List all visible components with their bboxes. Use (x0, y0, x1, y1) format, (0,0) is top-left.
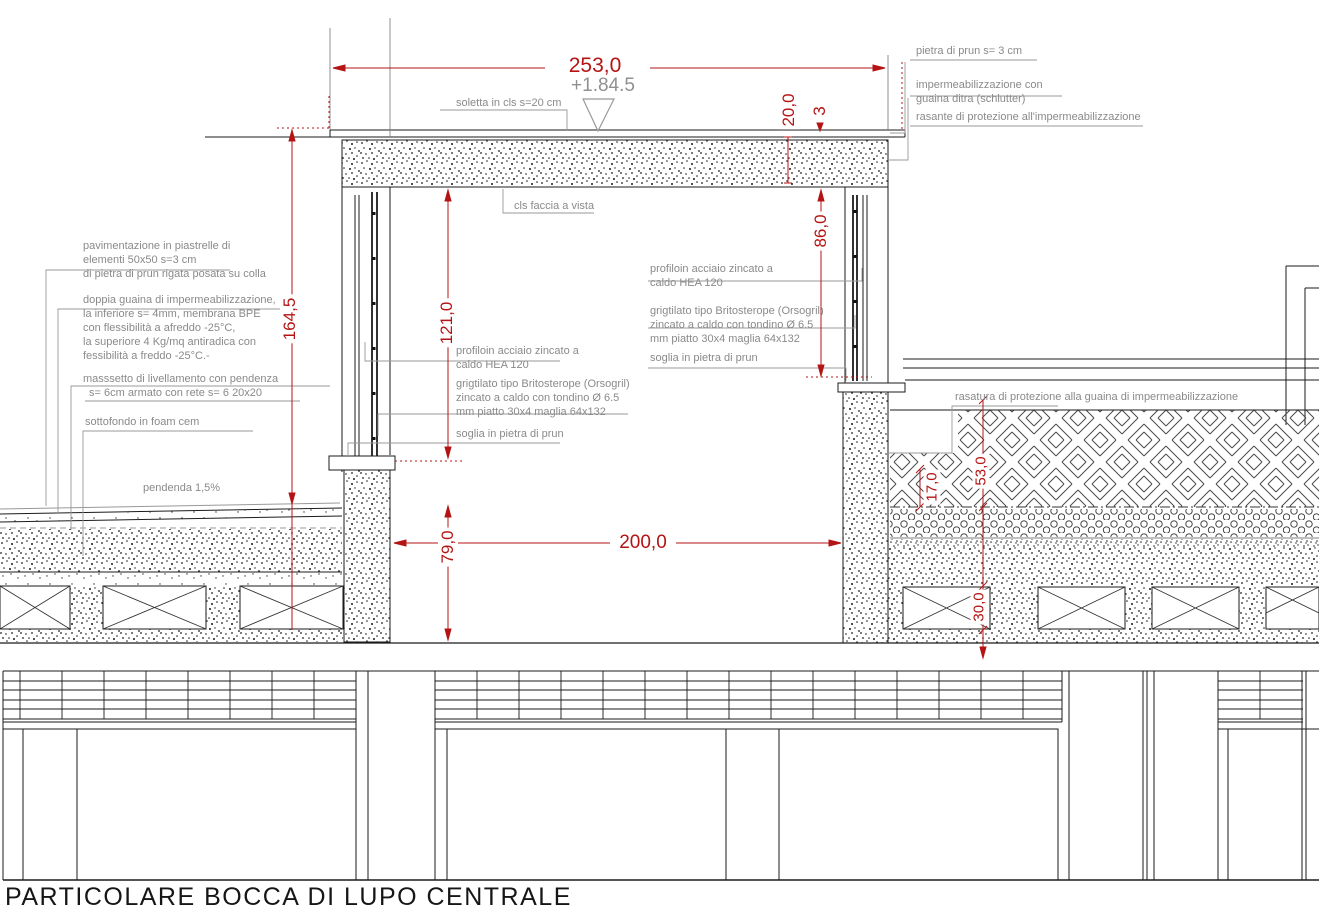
label-line: con flessibilità a afreddo -25°C, (83, 321, 276, 335)
level-marker-triangle (583, 99, 614, 131)
label-line: s= 6cm armato con rete s= 6 20x20 (83, 386, 278, 400)
label-line: profiloin acciaio zincato a (456, 344, 579, 358)
label-line: caldo HEA 120 (650, 276, 773, 290)
roof-slab (205, 130, 905, 187)
label-impermeabilizzazione: impermeabilizzazione con guaina ditra (s… (916, 78, 1043, 106)
dim-opening-height-right: 86,0 (811, 211, 831, 250)
lower-facade (3, 671, 1319, 880)
dim-terrace-buildup-depth: 53,0 (973, 453, 990, 488)
label-profilo-acciaio-right: profiloin acciaio zincato a caldo HEA 12… (650, 262, 773, 290)
label-line: fessibilità a freddo -25°C.- (83, 349, 276, 363)
drawing-title: PARTICOLARE BOCCA DI LUPO CENTRALE (5, 883, 572, 912)
label-line: masssetto di livellamento con pendenza (83, 372, 278, 386)
dim-stone-cap-thickness: 3 (810, 103, 830, 118)
label-line: zincato a caldo con tondino Ø 6.5 (456, 391, 630, 405)
label-line: profiloin acciaio zincato a (650, 262, 773, 276)
label-grigliato-center: grigtilato tipo Britosterope (Orsogril) … (456, 377, 630, 419)
label-line: mm piatto 30x4 maglia 64x132 (456, 405, 630, 419)
label-line: grigtilato tipo Britosterope (Orsogril) (650, 304, 824, 318)
label-line: doppia guaina di impermeabilizzazione, (83, 293, 276, 307)
label-line: guaina ditra (schlutter) (916, 92, 1043, 106)
label-rasatura: rasatura di protezione alla guaina di im… (955, 390, 1238, 404)
label-line: caldo HEA 120 (456, 358, 579, 372)
label-pietra-prun-cap: pietra di prun s= 3 cm (916, 44, 1022, 58)
dim-overall-height-left: 164,5 (280, 295, 300, 344)
label-sottofondo: sottofondo in foam cem (85, 415, 199, 429)
label-line: impermeabilizzazione con (916, 78, 1043, 92)
dim-clear-width: 200,0 (616, 532, 670, 554)
label-profilo-acciaio-center: profiloin acciaio zincato a caldo HEA 12… (456, 344, 579, 372)
right-terrace-layers (888, 266, 1319, 643)
label-line: mm piatto 30x4 maglia 64x132 (650, 332, 824, 346)
label-soletta: soletta in cls s=20 cm (456, 96, 561, 110)
label-line: la inferiore s= 4mm, membrana BPE (83, 307, 276, 321)
label-line: di pietra di prun rigata posata su colla (83, 267, 266, 281)
label-pavimentazione: pavimentazione in piastrelle di elementi… (83, 239, 266, 281)
label-line: grigtilato tipo Britosterope (Orsogril) (456, 377, 630, 391)
cad-section-drawing: soletta in cls s=20 cm cls faccia a vist… (0, 0, 1319, 918)
label-rasante: rasante di protezione all'impermeabilizz… (916, 110, 1141, 124)
label-pendenza: pendenda 1,5% (143, 481, 220, 495)
label-grigliato-right: grigtilato tipo Britosterope (Orsogril) … (650, 304, 824, 346)
label-line: pavimentazione in piastrelle di (83, 239, 266, 253)
label-massetto: masssetto di livellamento con pendenza s… (83, 372, 278, 400)
label-soglia-right: soglia in pietra di prun (650, 351, 758, 365)
label-doppia-guaina: doppia guaina di impermeabilizzazione, l… (83, 293, 276, 363)
dim-terrace-screed-depth: 17,0 (924, 469, 941, 504)
label-line: zincato a caldo con tondino Ø 6.5 (650, 318, 824, 332)
level-marker-value: +1.84.5 (571, 75, 635, 97)
label-cls-faccia-vista: cls faccia a vista (514, 199, 594, 213)
label-line: la superiore 4 Kg/mq antiradica con (83, 335, 276, 349)
dim-pit-floor-depth: 79,0 (438, 527, 458, 566)
dim-slab-thickness: 20,0 (779, 90, 799, 129)
label-line: elementi 50x50 s=3 cm (83, 253, 266, 267)
dim-opening-height-left: 121,0 (437, 299, 457, 348)
dim-joist-depth: 30,0 (971, 589, 988, 624)
drawing-linework (0, 0, 1319, 918)
label-soglia-center: soglia in pietra di prun (456, 427, 564, 441)
